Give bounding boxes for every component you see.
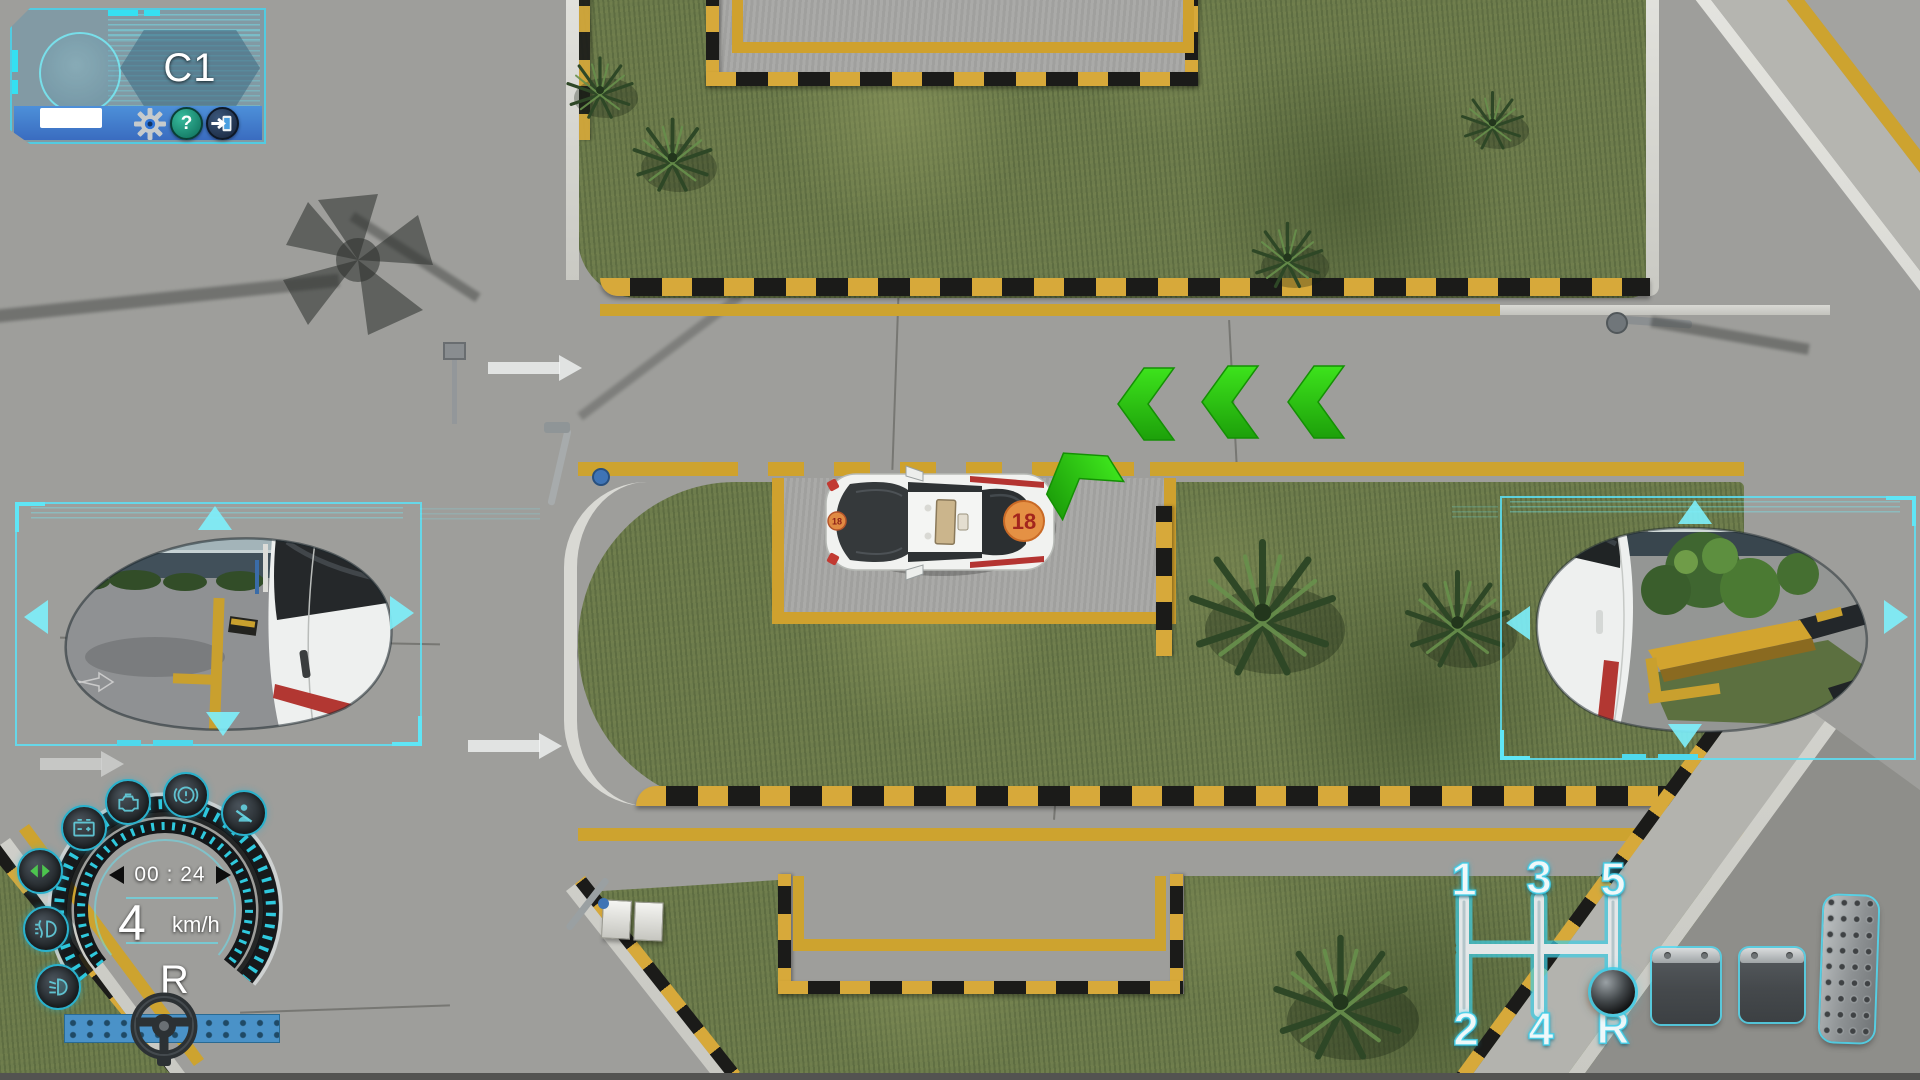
help-button[interactable]: ? <box>170 107 203 140</box>
frame-tab <box>1658 754 1698 760</box>
sign-head <box>443 342 466 360</box>
grass-tuft <box>625 110 720 205</box>
reverse-bay-line <box>732 0 1194 53</box>
accelerator-pedal[interactable] <box>1819 895 1878 1043</box>
brake-warning-icon <box>173 782 199 808</box>
right-mirror-adjust-up-button[interactable] <box>1678 500 1712 524</box>
white-curb <box>566 0 579 280</box>
road-arrow-right <box>468 740 540 752</box>
left-mirror-adjust-left-button[interactable] <box>24 600 48 634</box>
frame-corner <box>15 502 45 532</box>
lamp-shadow <box>1650 316 1809 355</box>
white-curb-cap <box>564 482 647 806</box>
frame-tab <box>153 740 193 746</box>
panel-accent-tab <box>144 10 160 16</box>
right-mirror-adjust-right-button[interactable] <box>1884 600 1908 634</box>
left-mirror-adjust-up-button[interactable] <box>198 506 232 530</box>
gear-position-3[interactable]: 3 <box>1519 850 1559 904</box>
gear-position-2[interactable]: 2 <box>1446 1002 1486 1056</box>
mirror-deco-lines <box>420 508 540 520</box>
road-arrow-right <box>40 758 102 770</box>
reverse-bay-curb-bottom <box>706 72 1198 86</box>
frame-corner <box>1500 730 1530 760</box>
guidance-arrows <box>1030 356 1370 521</box>
strip-curb-vertical <box>1156 506 1172 656</box>
player-car: 18 18 <box>820 458 1060 588</box>
grass-tuft <box>1245 215 1330 300</box>
panel-accent-tab <box>12 50 18 72</box>
brake-pedal[interactable] <box>1740 948 1804 1022</box>
timer-display: 00 : 24 <box>100 862 240 888</box>
road-edge-line <box>600 304 1500 316</box>
road-arrow-right <box>488 362 560 374</box>
license-class-text: C1 <box>163 46 216 91</box>
status-panel: C1 ? <box>10 8 266 144</box>
frame-corner <box>392 716 422 746</box>
exit-arrow-icon <box>208 109 237 138</box>
turn-signal-light[interactable] <box>17 848 63 894</box>
clutch-pedal[interactable] <box>1652 948 1720 1024</box>
battery-light[interactable] <box>61 805 107 851</box>
left-mirror-frame <box>15 502 422 746</box>
engine-icon <box>115 789 141 815</box>
left-mirror-adjust-right-button[interactable] <box>390 596 414 630</box>
name-plate <box>40 108 102 128</box>
sign-pole <box>452 352 457 424</box>
gear-knob[interactable] <box>1591 970 1635 1014</box>
windmill-shadow <box>248 160 468 360</box>
battery-icon <box>71 815 97 841</box>
frame-tab <box>1622 754 1646 760</box>
exit-button[interactable] <box>206 107 239 140</box>
palm-plant <box>1258 922 1423 1080</box>
panel-accent-tab <box>108 10 138 16</box>
street-lamp-head <box>1606 312 1628 334</box>
mirror-deco-lines <box>1452 506 1498 518</box>
license-class-badge: C1 <box>120 30 260 106</box>
panel-accent-tab <box>12 80 18 94</box>
gear-position-5[interactable]: 5 <box>1593 852 1633 906</box>
frame-corner <box>1886 496 1916 526</box>
radar-dial <box>39 32 121 114</box>
question-icon: ? <box>181 113 193 135</box>
palm-plant <box>1175 525 1350 700</box>
bottom-bay-curb-bottom <box>778 981 1183 994</box>
fog-light-light[interactable] <box>23 906 69 952</box>
speed-unit: km/h <box>172 912 220 938</box>
engine-light[interactable] <box>105 779 151 825</box>
lamp-post-arm <box>544 422 570 433</box>
left-mirror-adjust-down-button[interactable] <box>206 712 240 736</box>
gear-icon <box>134 108 166 140</box>
white-marker-box <box>633 902 663 942</box>
gear-position-1[interactable]: 1 <box>1444 852 1484 906</box>
gauge-divider <box>126 942 218 944</box>
fog-light-icon <box>33 916 59 942</box>
bottom-edge-strip <box>0 1073 1920 1080</box>
seatbelt-icon <box>231 800 257 826</box>
chevron-left-icon <box>1033 366 1344 520</box>
lamp-post-base <box>598 898 609 909</box>
timer-value: 00 : 24 <box>134 863 205 887</box>
strip-curb-bottom <box>636 786 1744 806</box>
bottom-bay-line-bottom <box>793 939 1166 951</box>
top-island-curb <box>600 278 1650 296</box>
timer-right-arrow[interactable] <box>216 866 231 884</box>
white-edge-line <box>1500 305 1830 315</box>
white-curb <box>1646 0 1659 296</box>
gear-position-4[interactable]: 4 <box>1521 1002 1561 1056</box>
bottom-bay-line-right <box>1155 876 1166 951</box>
right-mirror-frame <box>1500 496 1916 760</box>
right-mirror-adjust-down-button[interactable] <box>1668 724 1702 748</box>
headlight-low-beam-light[interactable] <box>35 964 81 1010</box>
frame-tab <box>117 740 141 746</box>
timer-left-arrow[interactable] <box>109 866 124 884</box>
steering-wheel-icon[interactable] <box>126 992 202 1068</box>
seatbelt-light[interactable] <box>221 790 267 836</box>
bottom-bay-curb-left <box>778 874 791 994</box>
driving-sim-screen: 18 18 C1 <box>0 0 1920 1080</box>
bottom-bay-curb-right <box>1170 874 1183 994</box>
headlight-low-beam-icon <box>45 974 71 1000</box>
grass-tuft <box>1455 85 1530 160</box>
svg-text:18: 18 <box>832 517 842 527</box>
brake-warning-light[interactable] <box>163 772 209 818</box>
road-edge-line <box>578 828 1744 841</box>
settings-button[interactable] <box>134 108 166 140</box>
turn-signal-icon <box>27 858 53 884</box>
lamp-post-base <box>592 468 610 486</box>
right-mirror-adjust-left-button[interactable] <box>1506 606 1530 640</box>
lamp-post <box>547 428 571 506</box>
